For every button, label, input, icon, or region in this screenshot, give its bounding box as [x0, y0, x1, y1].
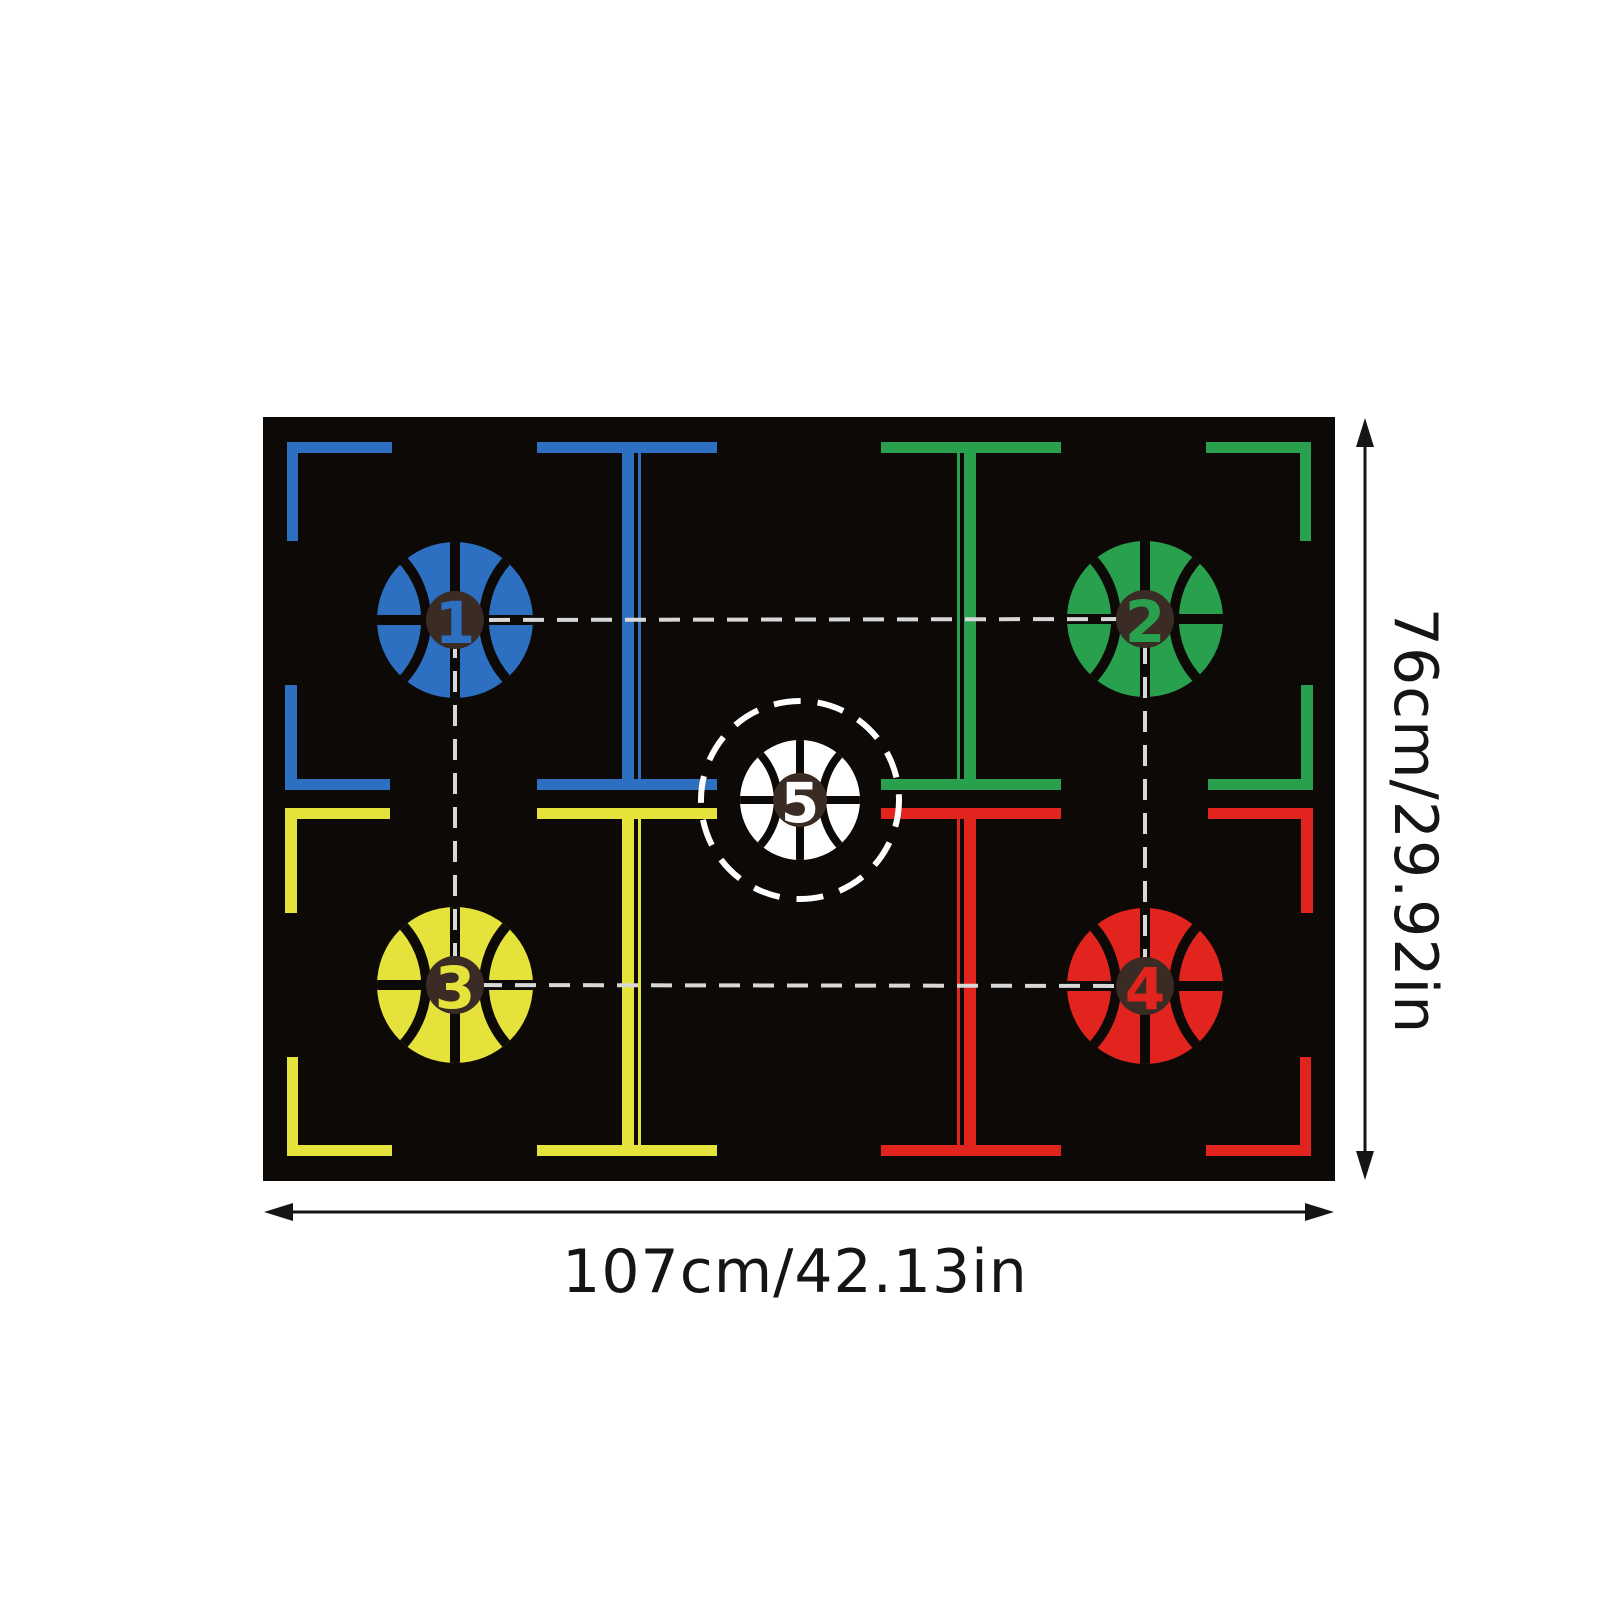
bottom-right-cornerV: [1300, 1057, 1311, 1156]
arrowhead-top: [1356, 418, 1374, 447]
arrowhead-bottom: [1356, 1151, 1374, 1180]
bottom-left-cornerV: [287, 1057, 298, 1156]
top-left-cornerH: [287, 442, 392, 453]
top-right-cornerV: [1300, 442, 1311, 541]
bottom-right-iThin: [957, 819, 960, 1145]
marker-number: 2: [1125, 588, 1165, 656]
top-left-cornerV: [287, 442, 298, 541]
arrowhead-right: [1305, 1203, 1334, 1221]
top-left-iThin: [638, 453, 641, 779]
bottom-left-midV: [285, 808, 297, 913]
bottom-right-midV: [1301, 808, 1313, 913]
height-arrow: [1356, 418, 1374, 1180]
top-right-iThin: [957, 453, 960, 779]
bottom-right-cornerH: [1206, 1145, 1311, 1156]
top-right-cornerH: [1206, 442, 1311, 453]
bottom-left-iThin: [638, 819, 641, 1145]
bottom-left-iThick: [622, 808, 634, 1156]
marker-number: 4: [1125, 955, 1165, 1023]
training-mat-diagram: 12345: [0, 0, 1600, 1600]
top-left-midV: [285, 685, 297, 790]
top-right-midV: [1301, 685, 1313, 790]
width-arrow: [264, 1203, 1334, 1221]
bottom-right-midH: [1208, 808, 1313, 819]
width-dimension-label: 107cm/42.13in: [562, 1237, 1028, 1307]
marker-number: 1: [435, 589, 475, 657]
bottom-left-cornerH: [287, 1145, 392, 1156]
top-left-midH: [285, 779, 390, 790]
marker-number: 5: [781, 771, 819, 835]
top-right-iThick: [964, 442, 976, 790]
height-dimension-label: 76cm/29.92in: [1380, 608, 1450, 1034]
bottom-right-iThick: [964, 808, 976, 1156]
top-right-midH: [1208, 779, 1313, 790]
bottom-left-midH: [285, 808, 390, 819]
arrowhead-left: [264, 1203, 293, 1221]
marker-number: 3: [435, 954, 475, 1022]
top-left-iThick: [622, 442, 634, 790]
